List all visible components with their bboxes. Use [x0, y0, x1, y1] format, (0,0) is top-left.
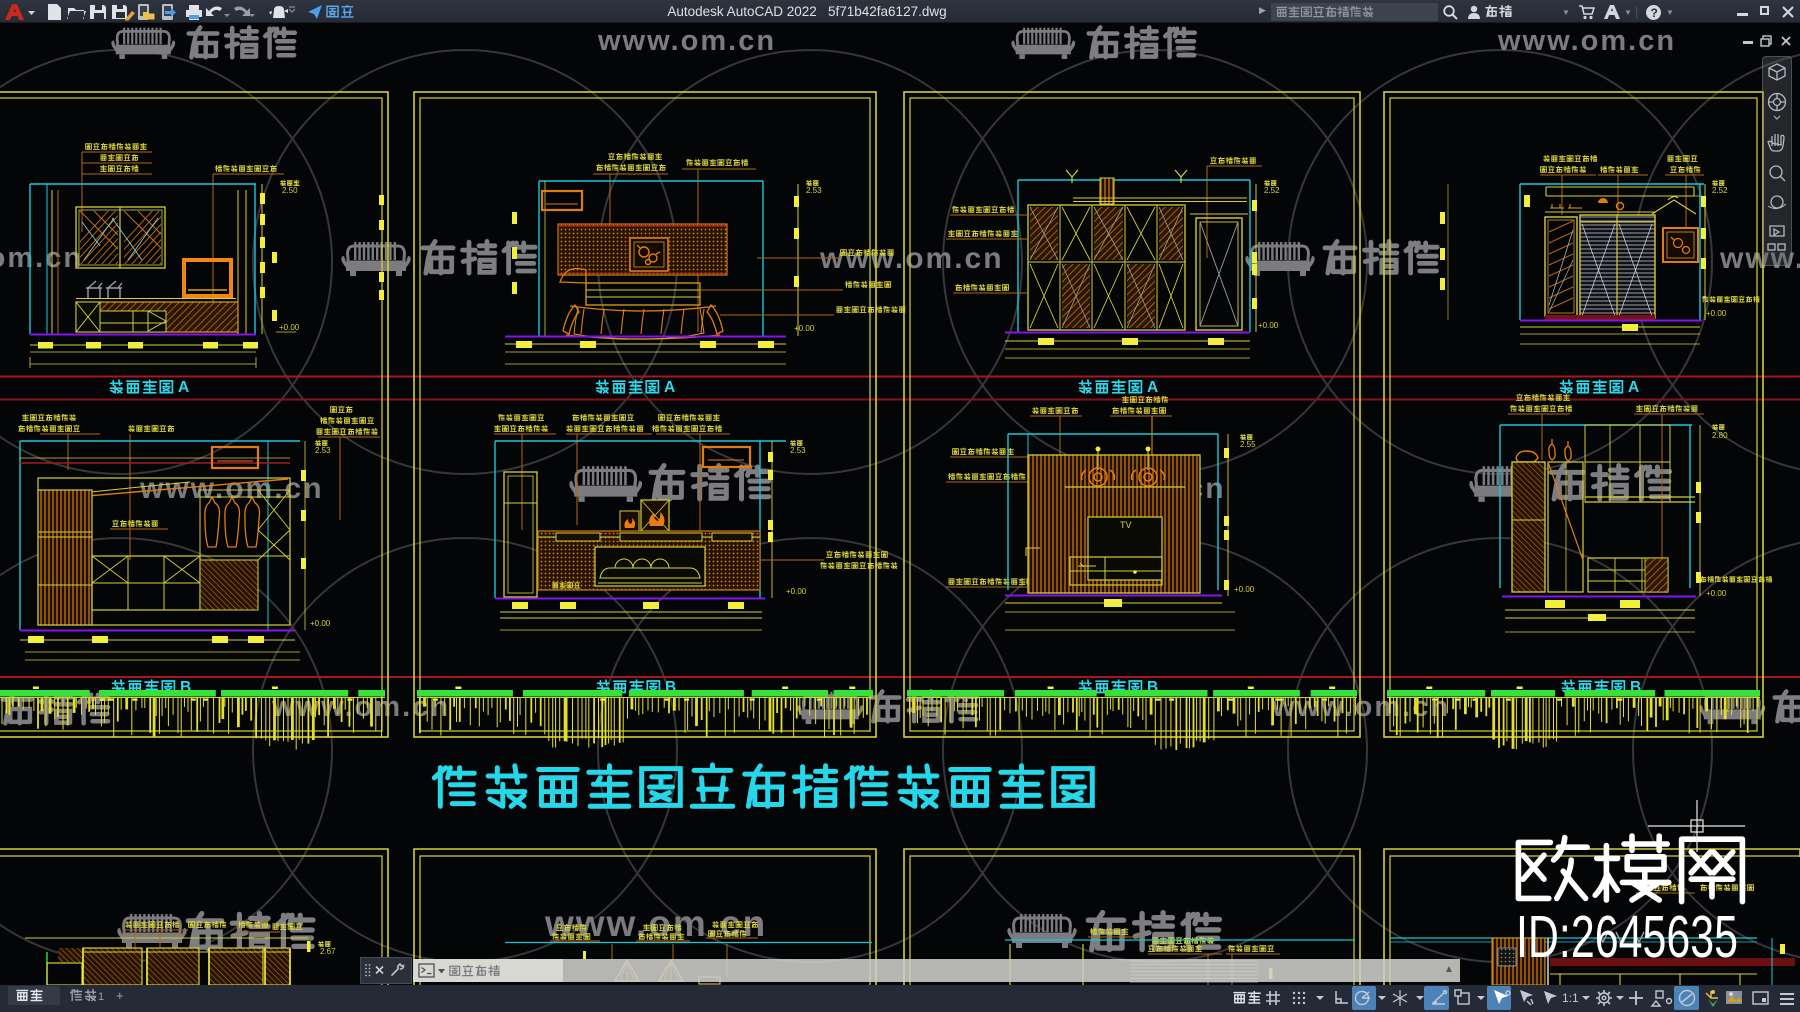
svg-text:www.om.cn: www.om.cn	[597, 25, 776, 57]
svg-text:1: 1	[98, 991, 104, 1003]
svg-text:A: A	[664, 379, 675, 396]
svg-text:1:1: 1:1	[1562, 991, 1579, 1005]
svg-text:ID:2645635: ID:2645635	[1516, 904, 1738, 970]
svg-text:?: ?	[1651, 6, 1658, 20]
svg-text:+0.00: +0.00	[794, 324, 815, 333]
svg-text:+0.00: +0.00	[1234, 585, 1255, 594]
svg-text:2.52: 2.52	[1264, 186, 1280, 195]
svg-text:www.om.cn: www.om.cn	[139, 472, 324, 505]
svg-text:+0.00: +0.00	[1706, 589, 1727, 598]
svg-text:2.50: 2.50	[282, 186, 298, 195]
svg-text:A: A	[1147, 379, 1158, 396]
svg-text:A: A	[1628, 379, 1639, 396]
svg-text:2.53: 2.53	[806, 186, 822, 195]
svg-text:www.om.cn: www.om.cn	[1497, 25, 1676, 57]
svg-text:2.53: 2.53	[790, 446, 806, 455]
svg-text:www.om.cn: www.om.cn	[819, 242, 1004, 275]
svg-text:TV: TV	[1120, 520, 1132, 530]
svg-text:2.52: 2.52	[1712, 186, 1728, 195]
svg-text:+0.00: +0.00	[279, 323, 300, 332]
svg-text:+0.00: +0.00	[310, 619, 331, 628]
svg-text:+0.00: +0.00	[1706, 309, 1727, 318]
svg-text:+0.00: +0.00	[786, 587, 807, 596]
svg-text:2.53: 2.53	[315, 446, 331, 455]
svg-text:2.55: 2.55	[1240, 440, 1256, 449]
svg-text:+0.00: +0.00	[1258, 321, 1279, 330]
svg-text:2.80: 2.80	[1712, 431, 1728, 440]
svg-text:www.om.cn: www.om.cn	[0, 242, 83, 274]
svg-text:2.67: 2.67	[320, 947, 336, 956]
svg-text:A: A	[178, 379, 189, 396]
